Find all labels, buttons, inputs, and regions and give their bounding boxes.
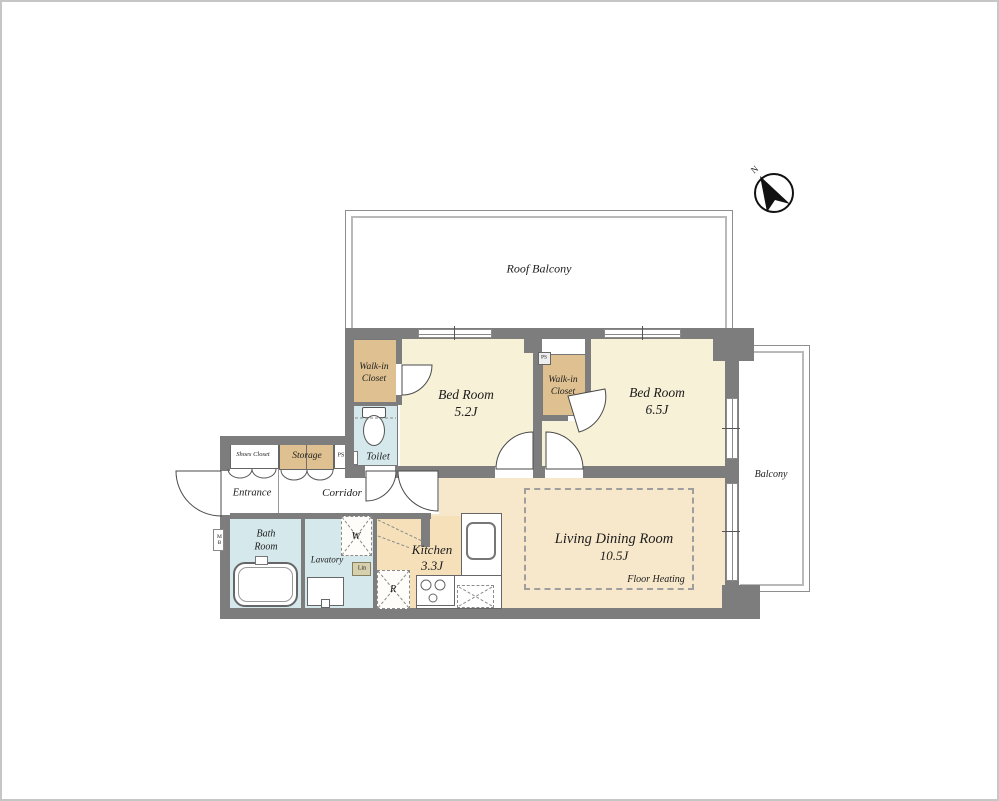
bedroom2-label: Bed Room 6.5J (629, 385, 685, 419)
bath-room-label: Bath Room (254, 529, 277, 554)
wall-wic2-bottom (542, 415, 568, 421)
washbasin-stub (321, 599, 330, 608)
floor-plan: Roof Balcony Balcony Bed Room 5.2J Bed R… (0, 0, 999, 801)
entrance-door-gap (221, 471, 230, 515)
entrance-label: Entrance (233, 486, 272, 499)
bedroom-2-nook (542, 421, 591, 467)
wall-bath-lavatory-divider (301, 516, 305, 609)
toilet-label: Toilet (366, 450, 390, 463)
kitchen-sink (466, 522, 496, 560)
bedroom2-balcony-window-tick (722, 428, 740, 429)
meter-box-label: MB (216, 534, 223, 546)
stove (416, 575, 455, 606)
wall-bottom-right-corner (722, 585, 760, 610)
wall-bedroom1-step (524, 339, 542, 353)
washing-machine-label: W (351, 530, 360, 544)
bedroom1-window (418, 329, 492, 338)
living-dining-size: 10.5J (555, 548, 673, 564)
wall-left (220, 436, 230, 619)
storage-label: Storage (292, 451, 322, 463)
living-dining-label: Living Dining Room 10.5J (555, 530, 673, 564)
lavatory-label: Lavatory (311, 554, 344, 565)
wall-left-upper (345, 328, 354, 471)
wall-wic1-bottom (348, 402, 398, 406)
wall-corridor-bottom (220, 513, 431, 519)
balcony-label: Balcony (755, 469, 788, 482)
bedroom2-size: 6.5J (629, 402, 685, 419)
pipe-space-left-label: PS (338, 452, 345, 459)
wic1-label: Walk-in Closet (359, 362, 388, 386)
roof-balcony-label: Roof Balcony (507, 262, 572, 277)
pipe-space-center-label: PS (541, 355, 547, 362)
floor-heating-label: Floor Heating (627, 574, 685, 587)
refrigerator-label: R (390, 584, 396, 597)
wic1-door-gap (396, 364, 402, 395)
kitchen-size: 3.3J (412, 558, 452, 574)
bedroom2-window-tick (642, 326, 643, 340)
ldk-balcony-window-tick (722, 531, 740, 532)
linen-label: Lin (358, 565, 366, 573)
wic2-label: Walk-in Closet (548, 375, 577, 399)
compass-north-label: N (749, 164, 761, 177)
bedroom1-door-gap (495, 467, 533, 478)
bedroom2-door-gap (545, 467, 583, 478)
bedroom1-label: Bed Room 5.2J (438, 387, 494, 421)
door-arc-entrance (176, 471, 221, 516)
dishwasher-box (457, 585, 494, 608)
ldk-balcony-window (726, 483, 738, 581)
bedroom1-size: 5.2J (438, 404, 494, 421)
wall-bedroom2-left (585, 339, 591, 423)
wall-bottom (220, 608, 760, 619)
toilet-door-gap (365, 466, 395, 477)
compass-icon (755, 174, 793, 212)
corridor-label: Corridor (322, 487, 362, 501)
toilet-bowl (363, 415, 385, 446)
kitchen-label: Kitchen 3.3J (412, 542, 452, 575)
wall-top (345, 328, 754, 339)
bath-counter (255, 556, 268, 565)
shoes-closet-label: Shoes Closet (236, 451, 269, 459)
bedroom1-window-tick (454, 326, 455, 340)
bathtub-inner (238, 567, 293, 602)
wall-left-section-top (220, 436, 354, 445)
